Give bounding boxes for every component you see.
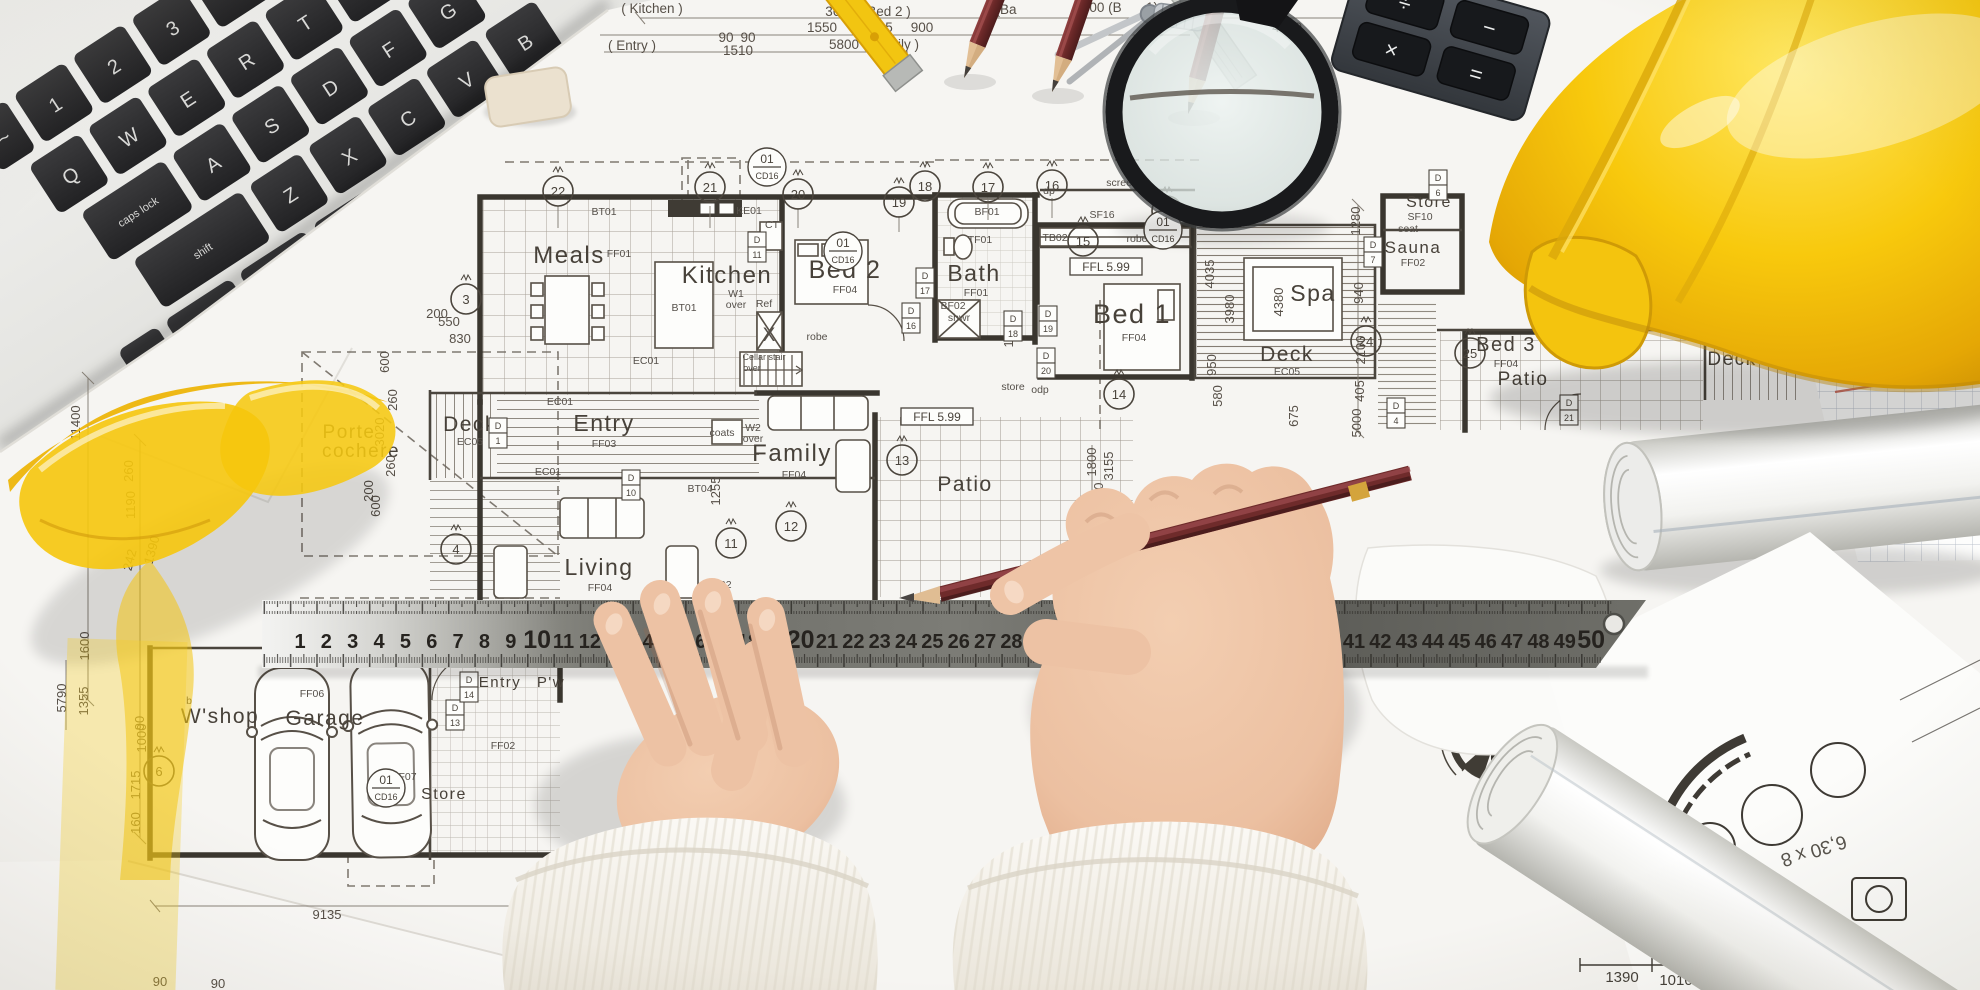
photo-architect-desk: ~12345QWERTYcaps lockASDFGshiftZXCVBfnco… [0, 0, 1980, 990]
photo-vignette [0, 0, 1980, 990]
scene-svg: ~12345QWERTYcaps lockASDFGshiftZXCVBfnco… [0, 0, 1980, 990]
